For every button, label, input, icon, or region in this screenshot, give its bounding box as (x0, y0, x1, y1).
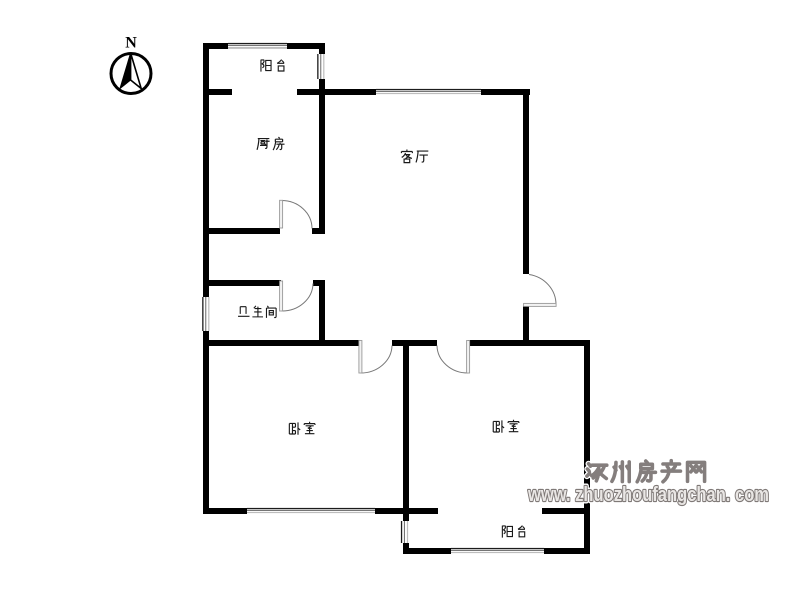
svg-text:N: N (125, 35, 137, 52)
svg-text:www. zhuozhoufangchan. com: www. zhuozhoufangchan. com (527, 484, 769, 506)
